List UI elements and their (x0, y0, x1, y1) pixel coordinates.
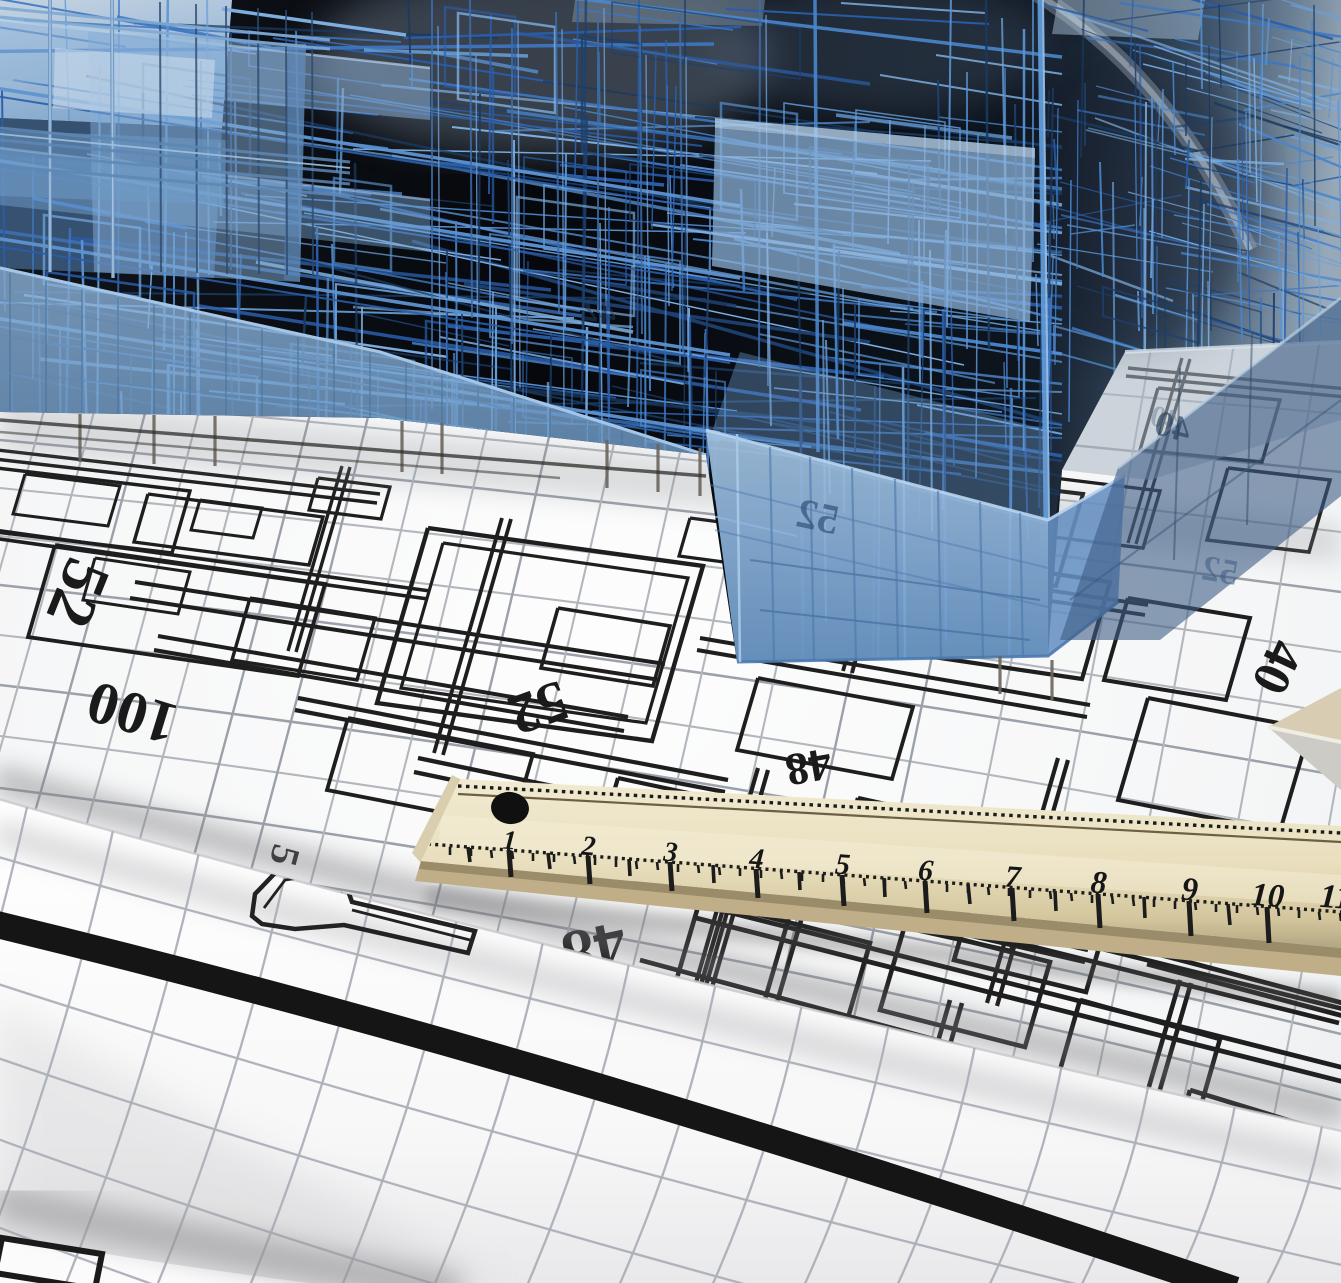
svg-text:2: 2 (579, 830, 596, 862)
svg-text:42: 42 (580, 291, 619, 332)
svg-text:4: 4 (747, 842, 765, 875)
svg-text:48: 48 (782, 738, 836, 796)
svg-text:5: 5 (834, 848, 851, 882)
svg-text:10: 10 (1250, 877, 1286, 915)
svg-text:8: 8 (1089, 863, 1108, 900)
svg-text:6: 6 (917, 854, 934, 888)
svg-text:3: 3 (661, 836, 678, 868)
svg-text:9: 9 (1180, 871, 1199, 908)
svg-text:11: 11 (1318, 878, 1341, 917)
svg-text:1: 1 (502, 825, 518, 856)
